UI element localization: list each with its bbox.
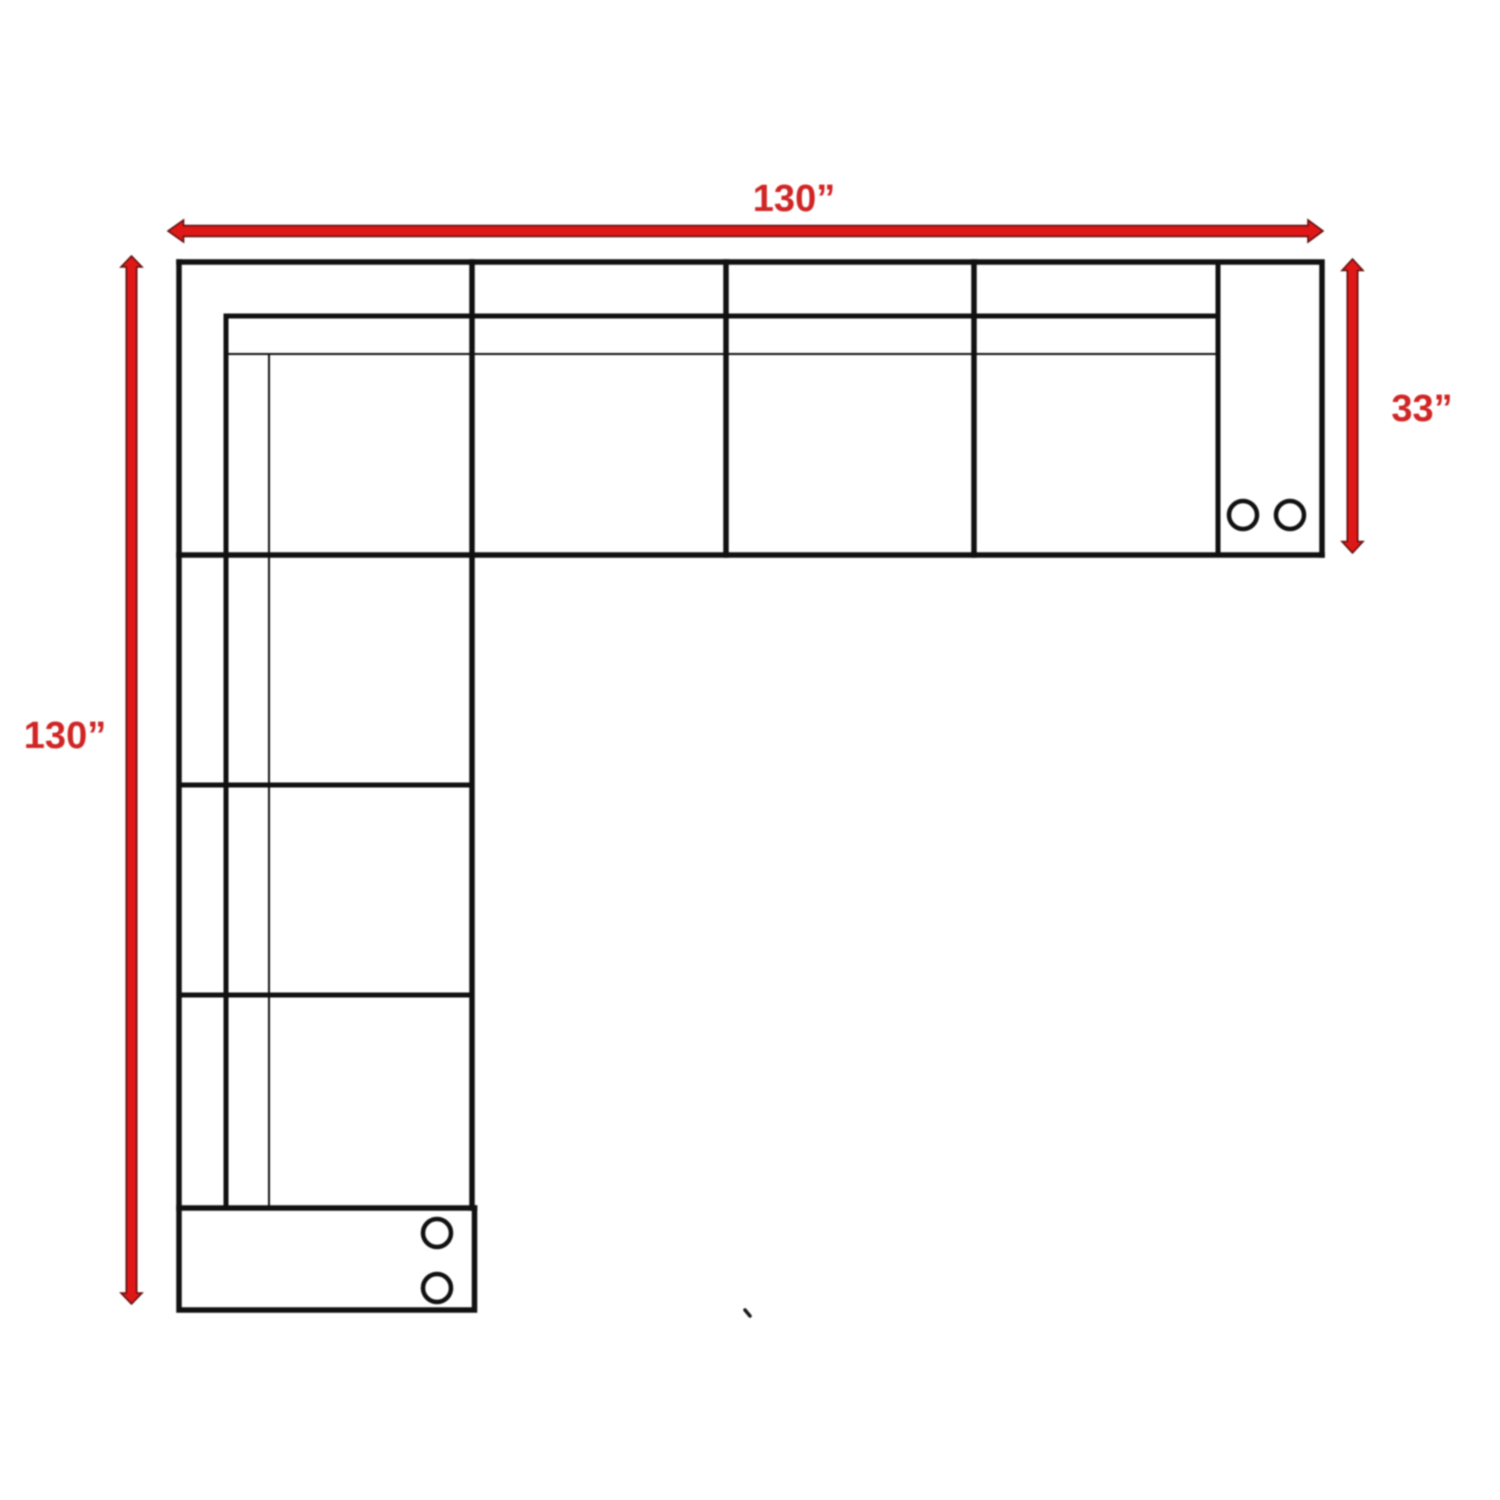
- svg-text:33”: 33”: [1391, 388, 1452, 430]
- svg-text:130”: 130”: [24, 715, 106, 757]
- svg-text:130”: 130”: [753, 178, 835, 220]
